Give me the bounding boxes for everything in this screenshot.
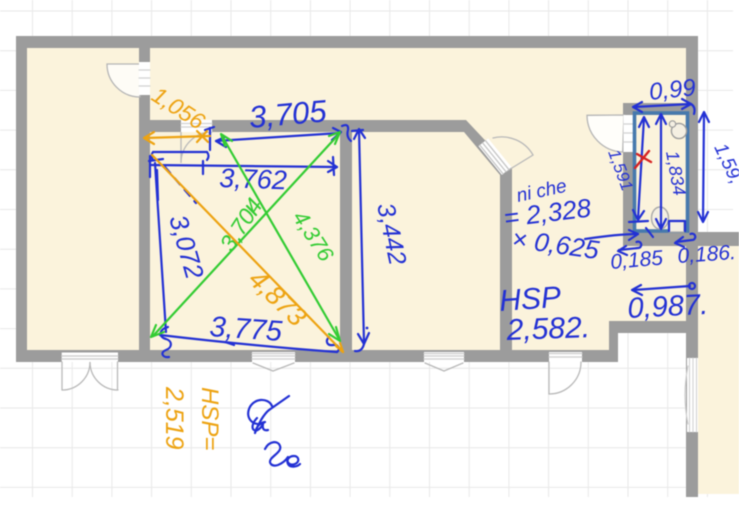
svg-text:3,775: 3,775 [209, 311, 284, 348]
svg-text:0,99: 0,99 [648, 74, 697, 106]
svg-text:0,185: 0,185 [609, 246, 664, 274]
svg-text:HSP=: HSP= [196, 387, 223, 450]
svg-text:2,582.: 2,582. [505, 311, 591, 347]
svg-text:0,186.: 0,186. [677, 241, 737, 268]
svg-text:2,519: 2,519 [160, 386, 188, 450]
svg-text:0,987.: 0,987. [627, 289, 709, 325]
svg-text:3,705: 3,705 [248, 93, 329, 135]
